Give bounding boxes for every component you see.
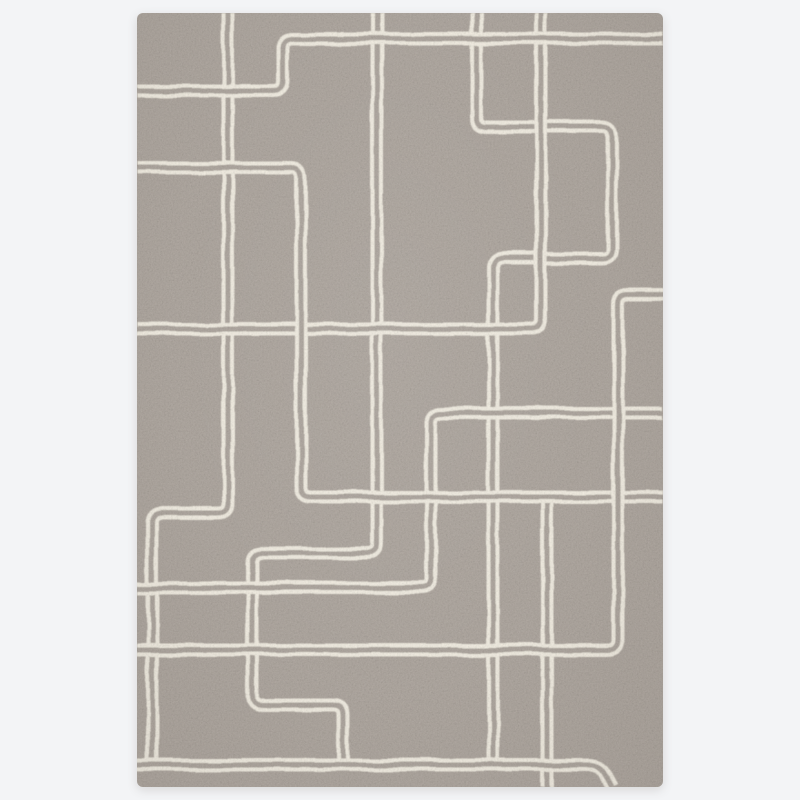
rug-pattern-svg: [137, 13, 663, 787]
rug: [137, 13, 663, 787]
wool-grain-overlay-light: [137, 13, 663, 787]
product-photo-canvas: [0, 0, 800, 800]
